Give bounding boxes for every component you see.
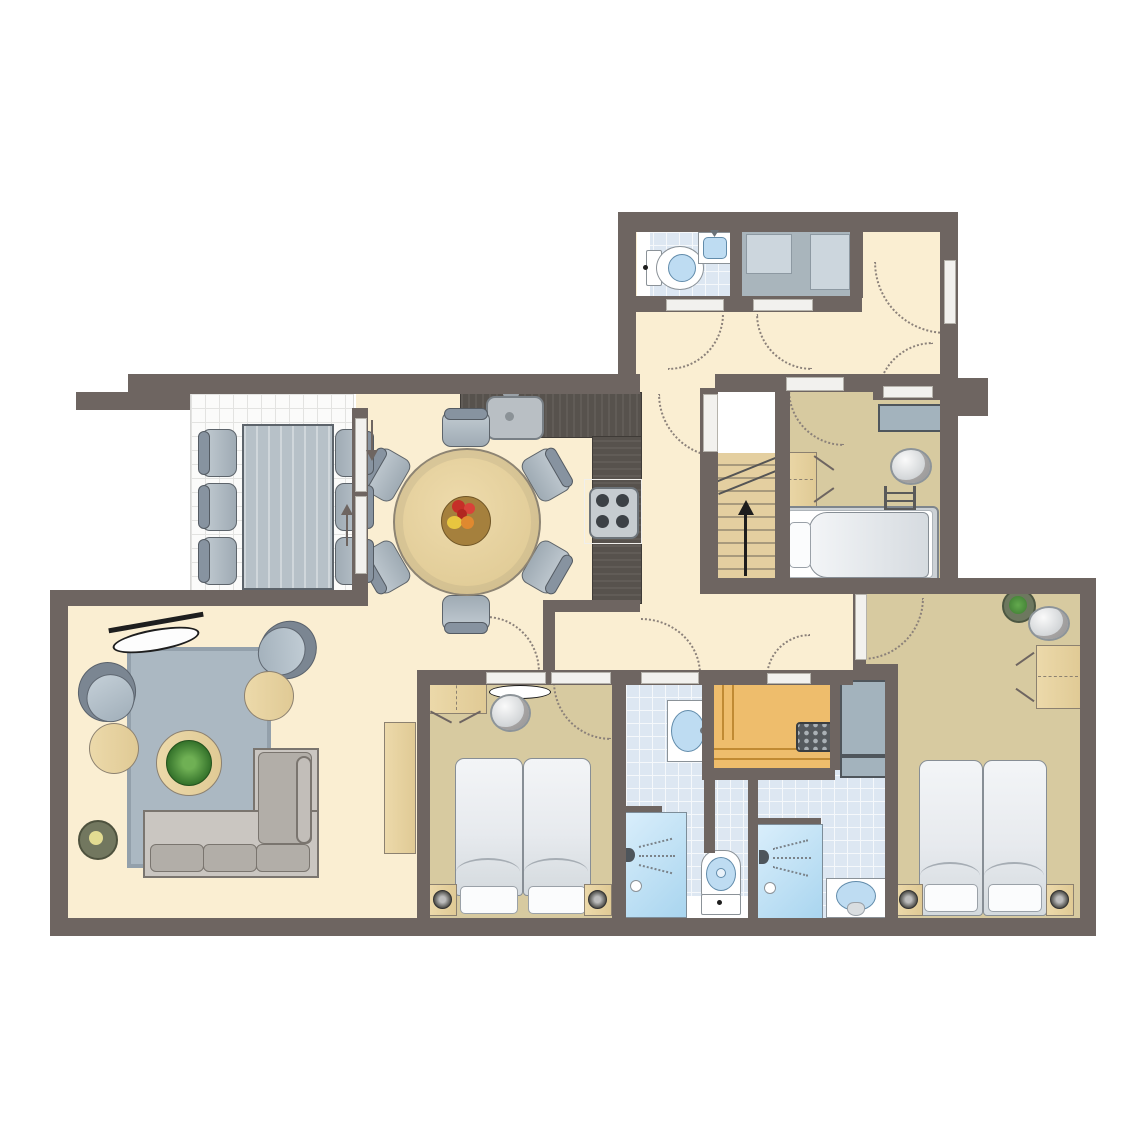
door-bedroom2-a <box>786 377 844 391</box>
bedroom2-mirror <box>890 448 932 485</box>
door-bedroom1 <box>551 672 611 684</box>
door-bathroom1 <box>641 672 699 684</box>
sofa-cushion <box>203 844 257 872</box>
stairs-up-arrow-head <box>738 500 754 515</box>
entry-arrow-head <box>366 450 378 461</box>
wall <box>940 396 958 594</box>
wall <box>748 780 758 918</box>
fruit-orange <box>461 516 474 529</box>
wall <box>50 590 68 936</box>
plant <box>166 740 212 786</box>
wall <box>626 806 662 812</box>
entry-shelf <box>878 404 942 432</box>
wall <box>543 600 640 612</box>
wall <box>850 232 863 298</box>
wall <box>775 382 790 582</box>
front-door <box>944 260 956 324</box>
wall <box>618 212 958 232</box>
wall <box>704 775 715 853</box>
bedroom2-pillow <box>789 522 811 568</box>
terrace-table <box>242 424 334 590</box>
bathroom1-shower <box>623 812 687 918</box>
bath-cabinet-tall <box>840 680 890 756</box>
wall <box>757 818 821 824</box>
sofa-cushion <box>256 844 310 872</box>
wall <box>543 600 555 682</box>
kitchen-sink <box>486 396 544 440</box>
bedroom2-duvet <box>809 512 929 578</box>
dining-chair <box>442 411 490 447</box>
bath-cabinet-low <box>840 756 890 778</box>
wall <box>128 374 640 394</box>
bedroom2-ladder <box>884 486 916 510</box>
bedroom1-mirror <box>490 694 531 732</box>
burner <box>616 515 629 528</box>
burner <box>596 515 609 528</box>
floor-plan <box>0 0 1145 1145</box>
terrace-chair <box>201 429 237 477</box>
wc-toilet-inner <box>668 254 696 282</box>
opening-stairwell <box>703 394 718 452</box>
wall <box>618 212 636 374</box>
toilet-bowl-dot <box>716 868 726 878</box>
wall <box>50 590 368 606</box>
wall <box>76 392 190 410</box>
bed-pillow <box>460 886 518 914</box>
nightstand-lamp <box>588 890 607 909</box>
sink-drain <box>505 412 514 421</box>
side-table <box>89 723 139 774</box>
nightstand-lamp <box>433 890 452 909</box>
shower-spray <box>639 855 675 857</box>
side-table <box>244 671 294 721</box>
sofa-cushion <box>150 844 204 872</box>
bed-pillow <box>988 884 1042 912</box>
nightstand-lamp <box>899 890 918 909</box>
wc-sink-basin <box>703 237 727 259</box>
sofa-armrest <box>296 756 312 844</box>
bed-pillow <box>924 884 978 912</box>
shower-spray <box>773 857 811 859</box>
stair-landing <box>718 390 775 453</box>
fruit-yellow <box>447 516 462 529</box>
shower-drain <box>764 882 776 894</box>
stairs-up-arrow-shaft <box>744 514 747 576</box>
shower-drain <box>630 880 642 892</box>
bed-pillow <box>528 886 586 914</box>
terrace-arrow-head <box>341 504 353 515</box>
burner <box>616 494 629 507</box>
sliding-door-terrace <box>355 496 367 574</box>
bedroom3-wardrobe <box>1036 645 1082 709</box>
door-hall-a <box>486 672 546 684</box>
terrace-chair <box>201 537 237 585</box>
bedroom3-mirror <box>1028 606 1070 641</box>
nightstand-lamp <box>1050 890 1069 909</box>
door-bedroom2-b <box>883 386 933 398</box>
terrace-arrow-shaft <box>346 514 348 546</box>
bathroom2-sink-pedestal <box>847 902 865 916</box>
burner <box>596 494 609 507</box>
wc-flush-dot <box>643 265 648 270</box>
wall <box>1080 578 1096 936</box>
dining-chair <box>442 595 490 631</box>
cooktop <box>589 487 639 539</box>
wardrobe-divider <box>1038 676 1078 677</box>
sideboard <box>384 722 416 854</box>
door-storage <box>753 299 813 311</box>
door-wc <box>666 299 724 311</box>
wall <box>50 918 1096 936</box>
storage-cabinet <box>746 234 792 274</box>
terrace-chair <box>201 483 237 531</box>
wall <box>956 378 988 416</box>
bed-mattress <box>523 758 591 896</box>
bed-mattress <box>455 758 523 896</box>
wall <box>417 670 430 918</box>
wall <box>885 678 898 918</box>
wall <box>702 768 835 780</box>
bedroom3-plant <box>1009 596 1027 614</box>
wall <box>700 578 1096 594</box>
entry-arrow-shaft <box>371 420 373 452</box>
wall <box>612 684 626 918</box>
storage-cabinet <box>810 234 850 290</box>
floor-lamp-glow <box>89 831 103 845</box>
door-bedroom3 <box>855 594 867 660</box>
wall <box>702 678 714 780</box>
wall <box>830 678 840 770</box>
door-sauna-hall <box>767 673 811 684</box>
toilet-flush-dot <box>717 900 722 905</box>
wall <box>730 232 742 298</box>
